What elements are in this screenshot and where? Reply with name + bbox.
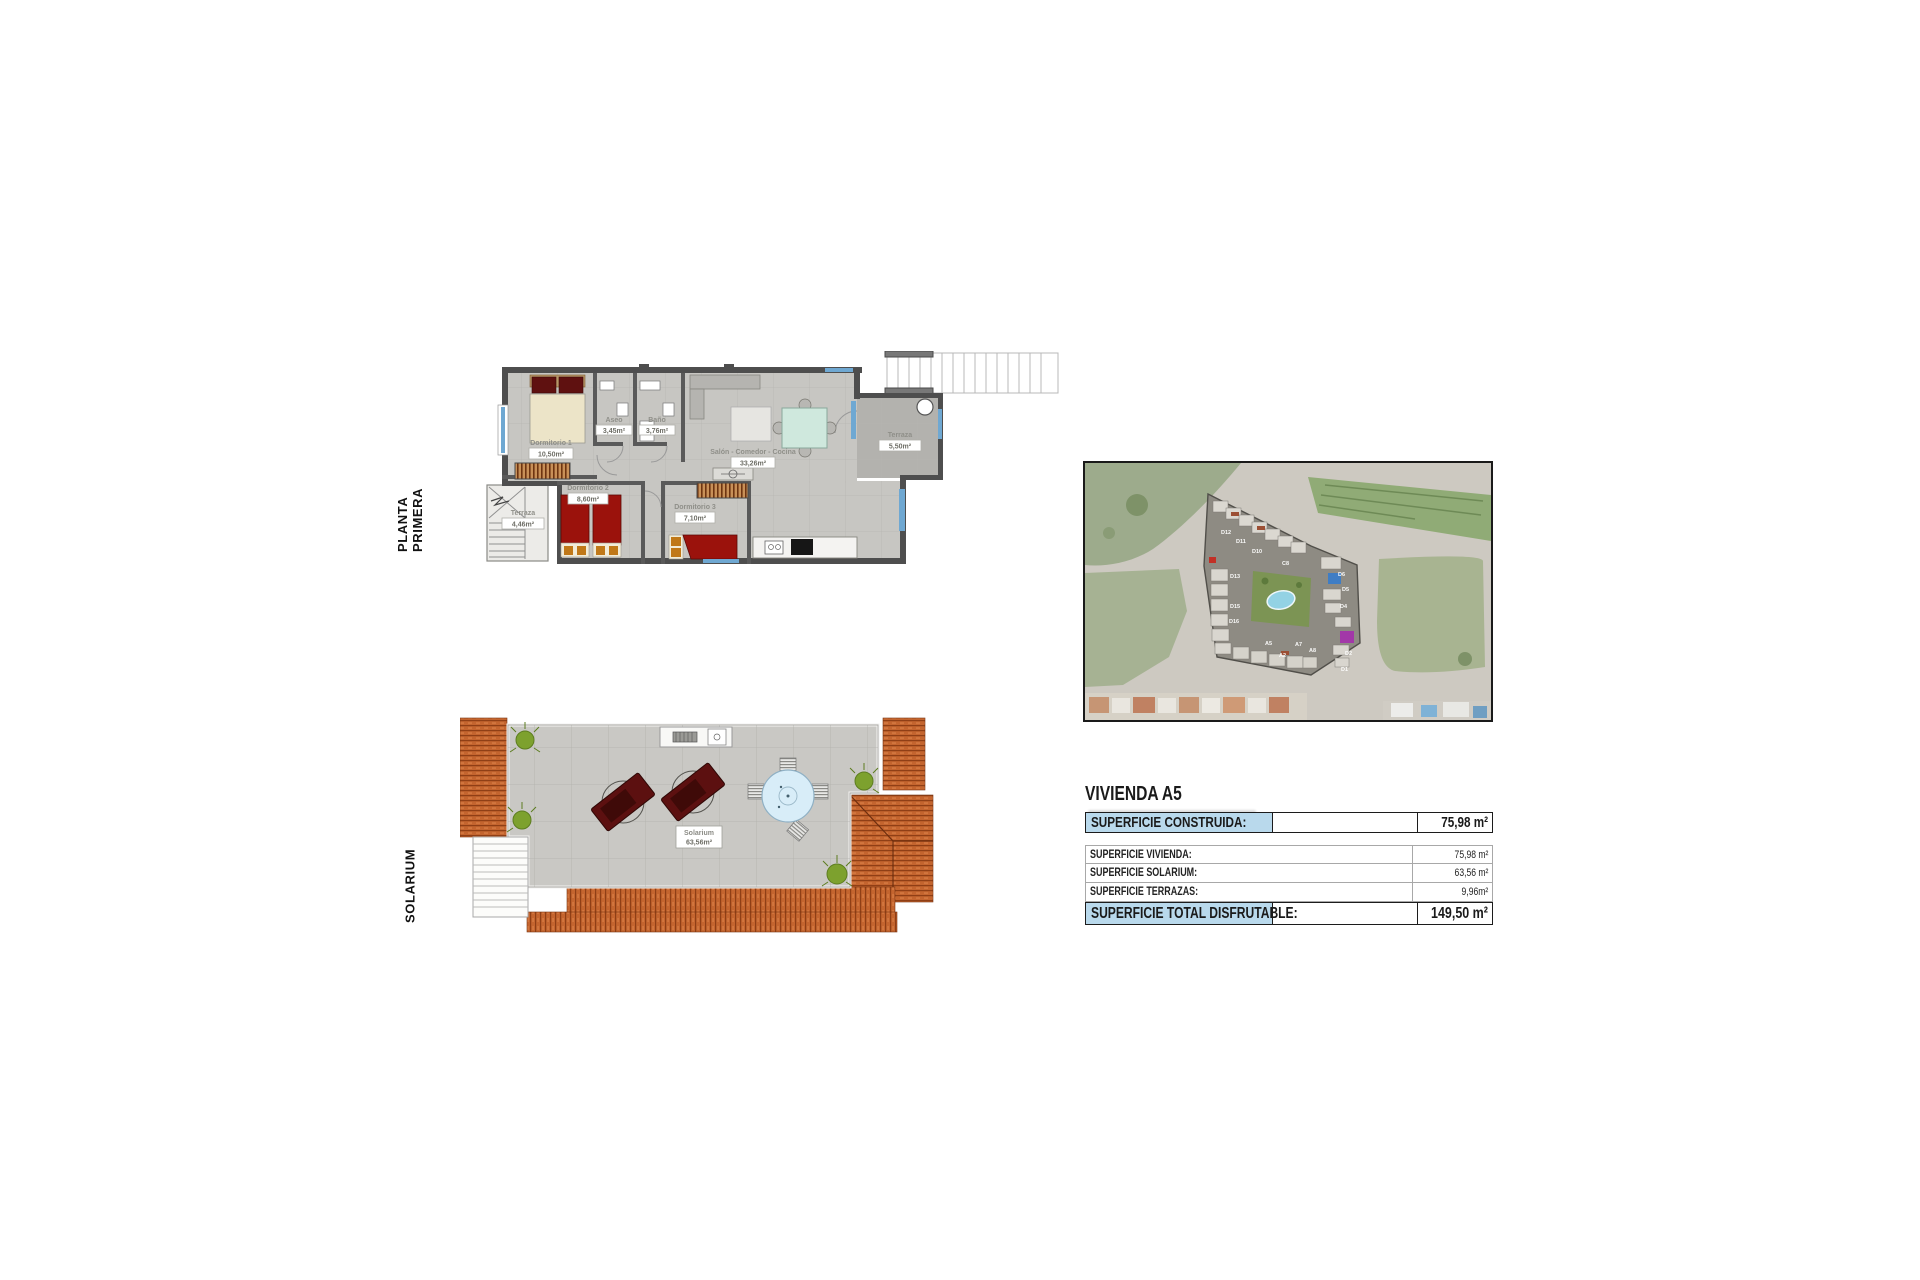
purple-unit	[1340, 631, 1354, 643]
table-row-solarium: SUPERFICIE SOLARIUM: 63,56 m²	[1085, 864, 1493, 883]
bed-dormitorio-1	[530, 375, 585, 443]
map-label: D4	[1340, 604, 1348, 610]
map-label: D11	[1236, 539, 1246, 545]
bbq-counter	[660, 727, 732, 747]
row-label: SUPERFICIE TOTAL DISFRUTABLE:	[1086, 903, 1273, 924]
table-row-total: SUPERFICIE TOTAL DISFRUTABLE: 149,50 m²	[1085, 902, 1493, 925]
row-value: 9,96m²	[1412, 883, 1492, 901]
map-label: D13	[1230, 574, 1240, 580]
row-value: 149,50 m²	[1418, 903, 1492, 924]
detail-rows: SUPERFICIE VIVIENDA: 75,98 m² SUPERFICIE…	[1085, 845, 1493, 902]
aerial-graphic: D12 D11 D10 C8 D13 D15 D16 A5 A2 A7 A8 D…	[1085, 463, 1491, 720]
planta-primera-floorplan: Dormitorio 1 10,50m² Aseo 3,45m² Baño 3,…	[485, 351, 1060, 588]
room-label-dormitorio-2: Dormitorio 2	[567, 485, 609, 492]
room-label-dormitorio-1: Dormitorio 1	[530, 440, 572, 447]
row-label: SUPERFICIE SOLARIUM:	[1086, 864, 1412, 882]
table-row-construida: SUPERFICIE CONSTRUIDA: 75,98 m²	[1085, 812, 1493, 833]
row-value: 63,56 m²	[1412, 864, 1492, 882]
sideboard-fan	[713, 468, 753, 480]
vivienda-title: VIVIENDA A5	[1085, 783, 1209, 806]
site-aerial-map: D12 D11 D10 C8 D13 D15 D16 A5 A2 A7 A8 D…	[1083, 461, 1493, 722]
solarium-staircase	[473, 837, 528, 917]
map-label: A7	[1295, 642, 1302, 648]
room-area-dormitorio-3: 7,10m²	[684, 516, 707, 523]
solarium-floorplan: Solarium 63,56m²	[460, 710, 955, 950]
room-area-dormitorio-2: 8,60m²	[577, 497, 600, 504]
row-spacer	[1273, 813, 1418, 832]
room-area-dormitorio-1: 10,50m²	[538, 452, 565, 459]
room-label-terraza-446: Terraza	[511, 510, 535, 517]
table-row-terrazas: SUPERFICIE TERRAZAS: 9,96m²	[1085, 883, 1493, 902]
solarium-room-label: Solarium	[684, 830, 714, 837]
wardrobe-dormitorio-1	[515, 463, 570, 479]
solarium-side-label: SOLARIUM	[399, 852, 421, 920]
row-label: SUPERFICIE VIVIENDA:	[1086, 846, 1412, 863]
table-row-vivienda: SUPERFICIE VIVIENDA: 75,98 m²	[1085, 845, 1493, 864]
map-label: D10	[1252, 549, 1262, 555]
external-staircase-planta	[885, 351, 1058, 394]
plan-sheet: PLANTA PRIMERA	[0, 0, 1920, 1280]
map-label: C8	[1282, 561, 1289, 567]
room-label-salon: Salón - Comedor - Cocina	[710, 449, 796, 456]
room-area-terraza-550: 5,50m²	[889, 444, 912, 451]
room-area-bano: 3,76m²	[646, 428, 669, 435]
solarium-room-area: 63,56m²	[686, 840, 713, 847]
map-label: D5	[1342, 587, 1349, 593]
kitchen-counter	[753, 537, 857, 558]
map-label: A2	[1279, 653, 1286, 659]
map-label: D2	[1345, 651, 1352, 657]
terrace-light-fixture	[917, 399, 933, 415]
map-label: D1	[1341, 667, 1348, 673]
row-value: 75,98 m²	[1412, 846, 1492, 863]
row-value: 75,98 m²	[1418, 813, 1492, 832]
map-label: A5	[1265, 641, 1272, 647]
planta-primera-side-label: PLANTA PRIMERA	[399, 452, 421, 552]
map-label: A8	[1309, 648, 1316, 654]
room-label-terraza-550: Terraza	[888, 432, 912, 439]
room-label-aseo: Aseo	[605, 417, 622, 424]
map-label: D16	[1229, 619, 1239, 625]
map-label: D6	[1338, 572, 1345, 578]
room-label-bano: Baño	[648, 417, 666, 424]
room-area-aseo: 3,45m²	[603, 428, 626, 435]
map-label: D15	[1230, 604, 1240, 610]
room-label-dormitorio-3: Dormitorio 3	[674, 504, 716, 511]
row-label: SUPERFICIE CONSTRUIDA:	[1086, 813, 1273, 832]
room-area-terraza-446: 4,46m²	[512, 522, 535, 529]
wardrobe-dormitorio-3	[697, 483, 748, 498]
room-area-salon: 33,26m²	[740, 461, 767, 468]
bed-dormitorio-3	[669, 535, 737, 559]
row-label: SUPERFICIE TERRAZAS:	[1086, 883, 1412, 901]
map-label: D12	[1221, 530, 1231, 536]
red-marker	[1209, 557, 1216, 563]
